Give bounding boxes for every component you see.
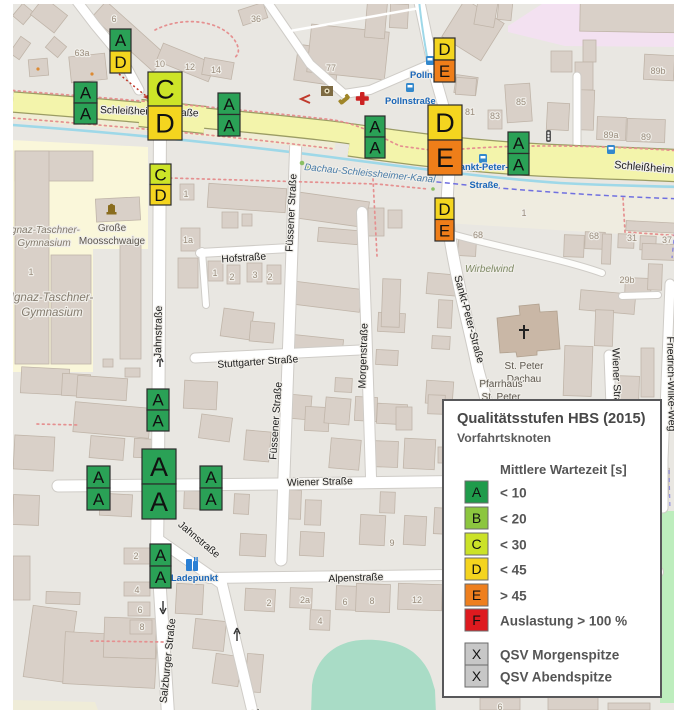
svg-text:A: A	[155, 568, 167, 587]
svg-text:A: A	[513, 155, 525, 174]
svg-text:36: 36	[251, 14, 261, 24]
svg-text:4: 4	[134, 585, 139, 595]
svg-text:12: 12	[185, 62, 195, 72]
svg-text:Straße: Straße	[470, 180, 499, 190]
svg-text:B: B	[472, 510, 481, 526]
svg-text:89a: 89a	[603, 130, 618, 140]
svg-text:X: X	[472, 668, 482, 684]
svg-text:10: 10	[155, 59, 165, 69]
svg-text:A: A	[223, 95, 235, 114]
svg-text:D: D	[154, 186, 166, 205]
svg-text:Moosschwaige: Moosschwaige	[79, 236, 146, 247]
svg-text:77: 77	[326, 63, 336, 73]
svg-text:St. Peter: St. Peter	[505, 361, 545, 372]
svg-text:C: C	[471, 536, 481, 552]
svg-text:Mittlere Wartezeit [s]: Mittlere Wartezeit [s]	[500, 462, 627, 477]
svg-text:E: E	[439, 62, 450, 81]
svg-text:< 20: < 20	[500, 512, 527, 527]
svg-text:Wirbelwind: Wirbelwind	[465, 264, 514, 275]
svg-text:QSV Morgenspitze: QSV Morgenspitze	[500, 648, 620, 663]
svg-text:Vorfahrtsknoten: Vorfahrtsknoten	[457, 431, 551, 445]
svg-text:Große: Große	[98, 223, 127, 234]
svg-text:2a: 2a	[300, 595, 310, 605]
svg-text:A: A	[205, 468, 217, 487]
svg-text:2: 2	[133, 551, 138, 561]
svg-text:85: 85	[516, 97, 526, 107]
svg-text:8: 8	[369, 596, 374, 606]
svg-text:6: 6	[111, 14, 116, 24]
svg-text:Auslastung > 100 %: Auslastung > 100 %	[500, 614, 627, 629]
svg-text:A: A	[472, 484, 482, 500]
svg-text:1a: 1a	[183, 235, 193, 245]
svg-text:Gymnasium: Gymnasium	[17, 238, 70, 249]
svg-text:C: C	[154, 165, 166, 184]
svg-text:< 45: < 45	[500, 563, 527, 578]
svg-text:A: A	[513, 134, 525, 153]
svg-text:37: 37	[662, 235, 672, 245]
svg-text:89: 89	[641, 132, 651, 142]
svg-text:F: F	[472, 612, 481, 628]
svg-text:D: D	[471, 561, 481, 577]
svg-text:6: 6	[342, 597, 347, 607]
svg-text:Wiener Straße: Wiener Straße	[287, 476, 353, 489]
svg-text:Ladepunkt: Ladepunkt	[171, 573, 218, 583]
svg-text:29b: 29b	[619, 275, 634, 285]
svg-text:< 30: < 30	[500, 538, 527, 553]
svg-text:< 10: < 10	[500, 486, 527, 501]
svg-text:D: D	[438, 40, 450, 59]
svg-text:12: 12	[412, 595, 422, 605]
svg-text:31: 31	[627, 233, 637, 243]
svg-text:A: A	[223, 116, 235, 135]
svg-text:1: 1	[183, 189, 188, 199]
svg-text:A: A	[152, 391, 164, 410]
svg-text:Jahnstraße: Jahnstraße	[152, 305, 165, 358]
svg-text:A: A	[155, 546, 167, 565]
svg-text:2: 2	[229, 272, 234, 282]
svg-text:68: 68	[589, 231, 599, 241]
svg-text:D: D	[438, 200, 450, 219]
svg-text:3: 3	[252, 270, 257, 280]
svg-text:89b: 89b	[650, 66, 665, 76]
svg-text:> 45: > 45	[500, 589, 527, 604]
svg-text:C: C	[155, 75, 175, 105]
svg-text:Pfarrhaus: Pfarrhaus	[479, 379, 522, 390]
svg-text:6: 6	[137, 605, 142, 615]
svg-text:Ignaz-Taschner-: Ignaz-Taschner-	[8, 225, 80, 236]
svg-text:68: 68	[473, 230, 483, 240]
svg-text:D: D	[435, 108, 455, 138]
svg-text:E: E	[436, 143, 454, 173]
svg-text:A: A	[152, 412, 164, 431]
svg-text:83: 83	[490, 111, 500, 121]
svg-text:Alpenstraße: Alpenstraße	[328, 572, 384, 585]
svg-text:QSV Abendspitze: QSV Abendspitze	[500, 670, 613, 685]
svg-text:D: D	[114, 53, 126, 72]
svg-text:Gymnasium: Gymnasium	[21, 307, 83, 319]
svg-text:1: 1	[521, 208, 526, 218]
svg-text:Ignaz-Taschner-: Ignaz-Taschner-	[11, 292, 94, 304]
svg-text:A: A	[369, 118, 381, 137]
svg-text:A: A	[369, 139, 381, 158]
svg-text:9: 9	[389, 538, 394, 548]
svg-text:A: A	[150, 452, 168, 482]
svg-text:A: A	[115, 31, 127, 50]
svg-text:A: A	[80, 84, 92, 103]
svg-text:A: A	[93, 490, 105, 509]
svg-text:A: A	[205, 490, 217, 509]
svg-text:81: 81	[465, 107, 475, 117]
svg-text:Qualitätsstufen HBS (2015): Qualitätsstufen HBS (2015)	[457, 411, 646, 427]
svg-text:X: X	[472, 646, 482, 662]
svg-text:A: A	[80, 105, 92, 124]
svg-text:E: E	[472, 587, 481, 603]
svg-text:8: 8	[139, 622, 144, 632]
svg-text:1: 1	[212, 268, 217, 278]
svg-text:E: E	[439, 221, 450, 240]
svg-text:A: A	[150, 487, 168, 517]
svg-text:2: 2	[267, 272, 272, 282]
svg-text:14: 14	[211, 65, 221, 75]
svg-text:Morgenstraße: Morgenstraße	[356, 323, 370, 389]
svg-text:D: D	[155, 109, 175, 139]
svg-text:63a: 63a	[74, 48, 89, 58]
svg-text:A: A	[93, 468, 105, 487]
svg-text:4: 4	[317, 616, 322, 626]
svg-text:2: 2	[266, 598, 271, 608]
svg-text:1: 1	[28, 267, 33, 277]
